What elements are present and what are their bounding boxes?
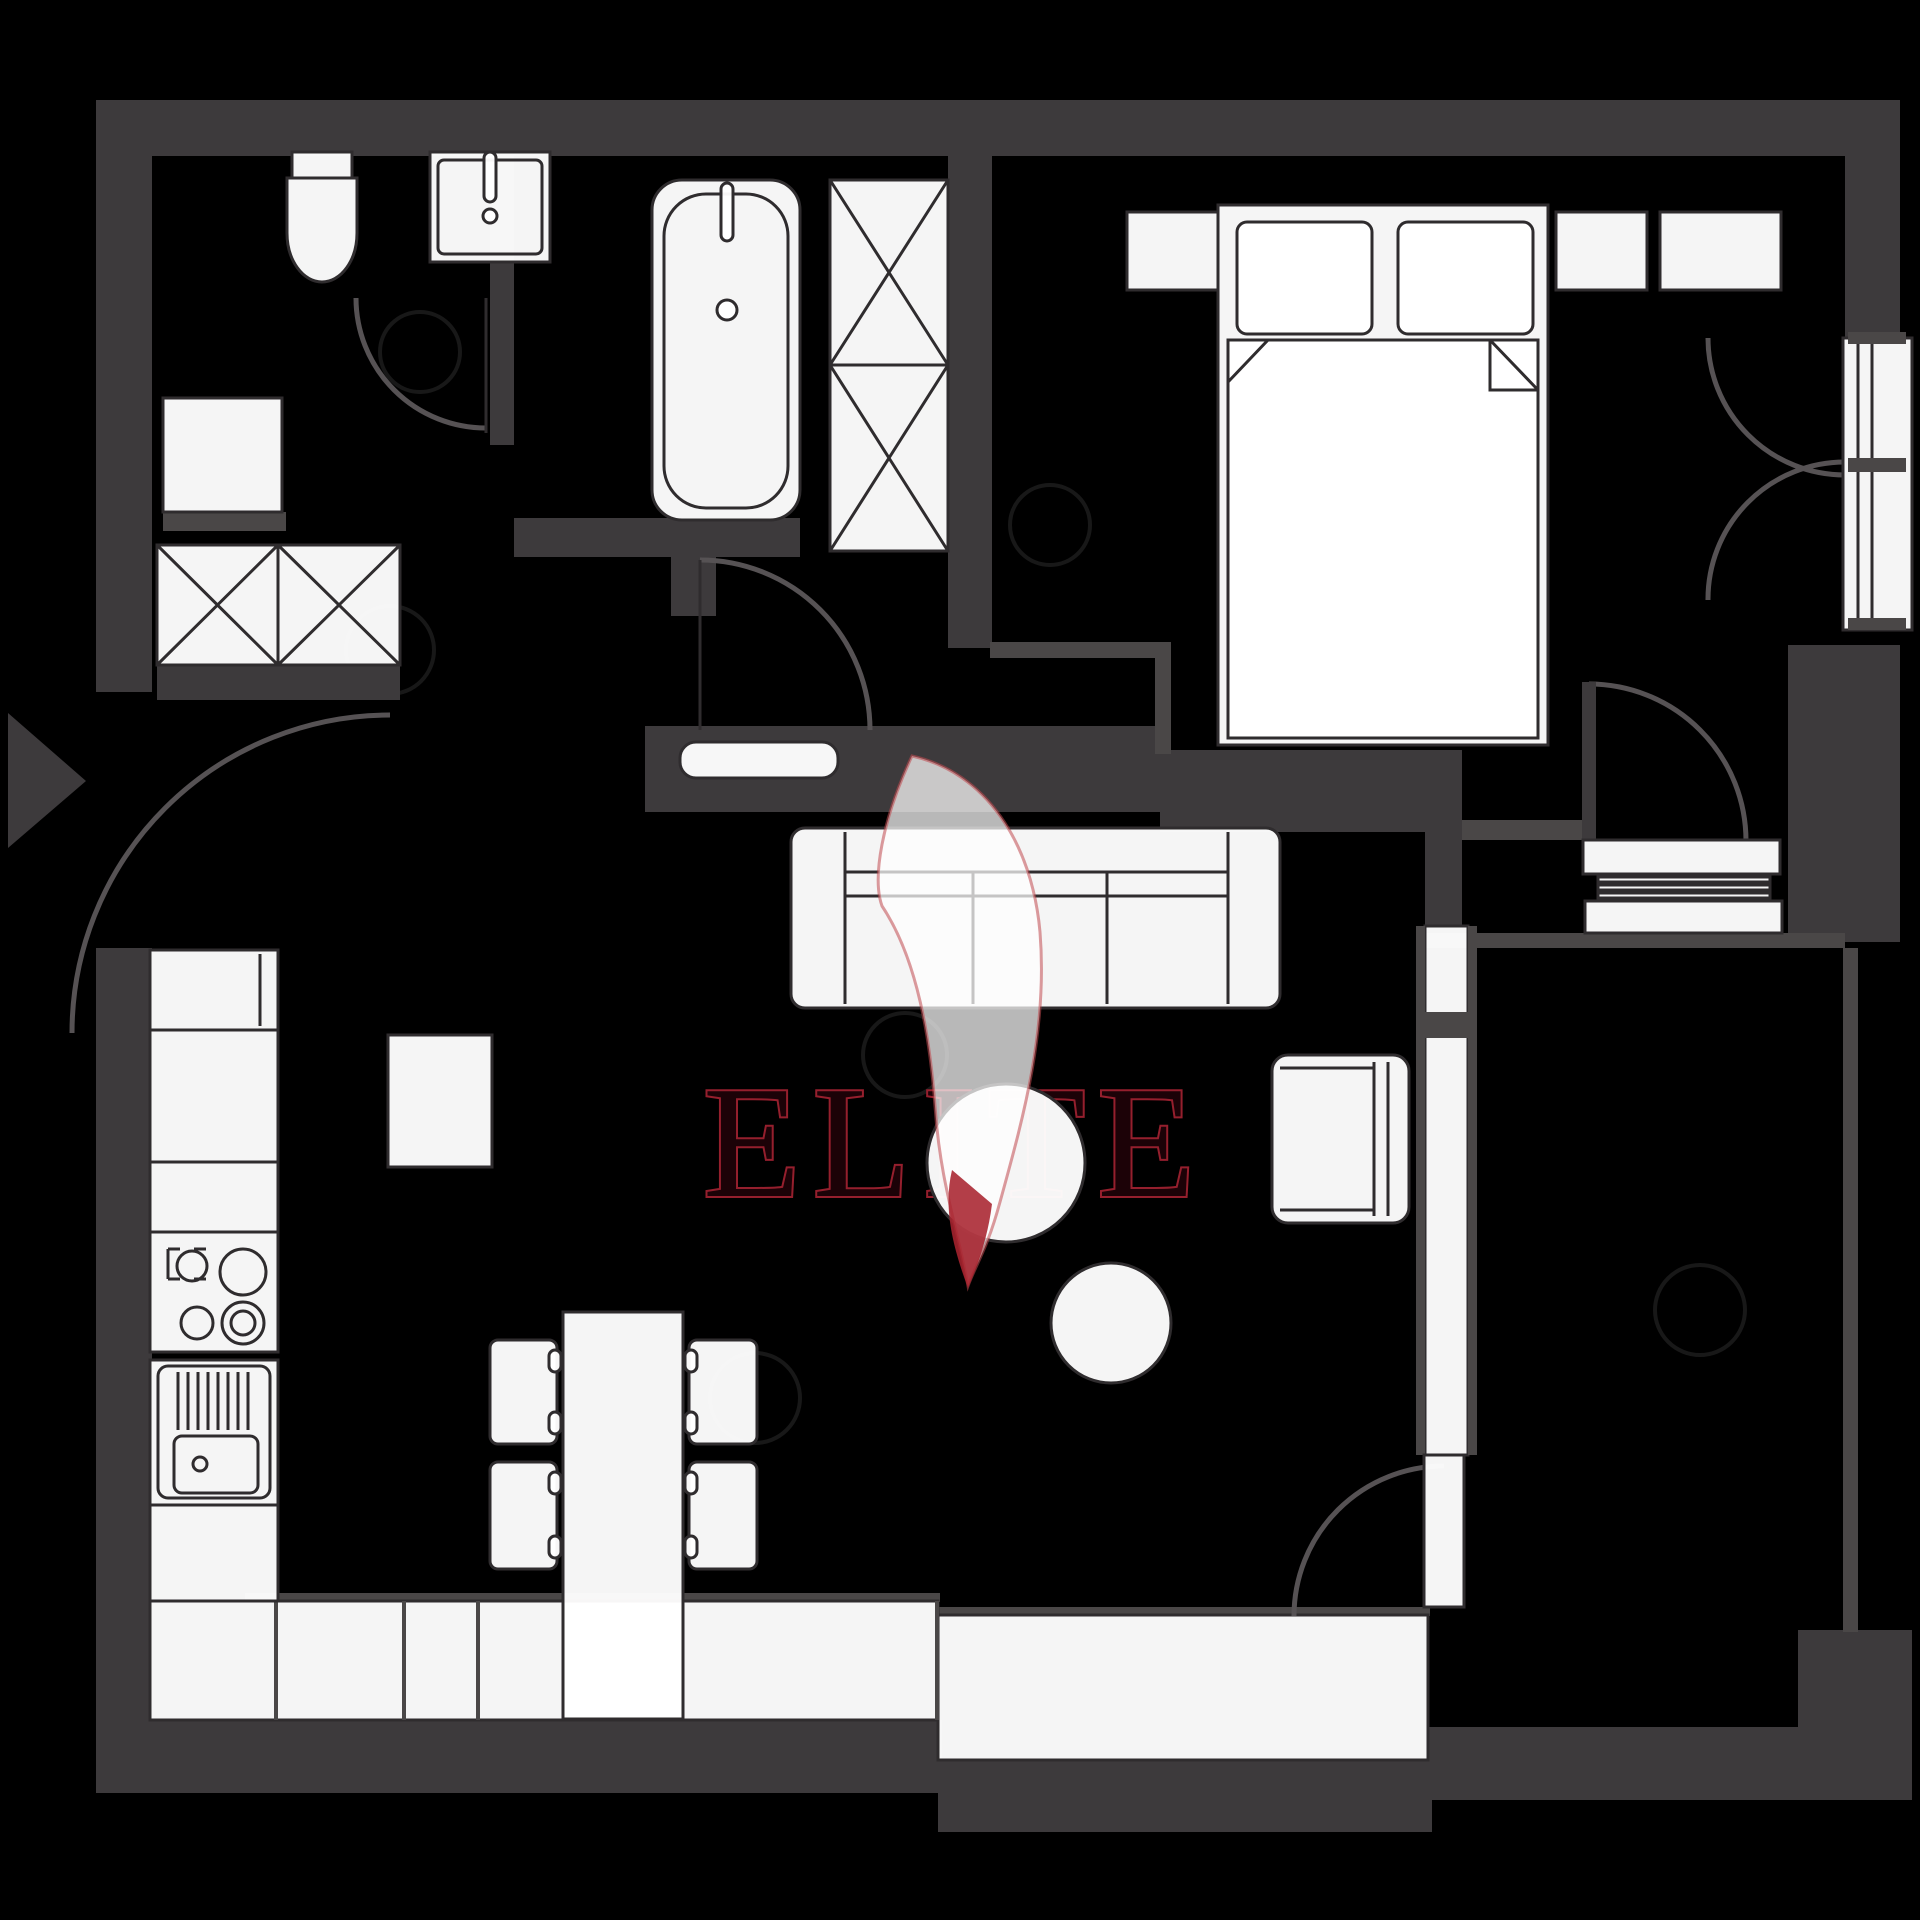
- window-leaf-arc-bottom: [1708, 462, 1845, 600]
- armchair-icon: [1272, 1055, 1409, 1223]
- wc-door-arc: [356, 298, 486, 428]
- sliding-partition: [1416, 926, 1477, 1455]
- coffee-table-small-icon: [1051, 1263, 1171, 1383]
- toilet-tank-icon: [292, 152, 352, 178]
- kitchen-sink-icon: [150, 1360, 278, 1505]
- sideboard-bottom: [1585, 901, 1782, 933]
- wc-faucet-icon: [484, 152, 496, 202]
- chair-arm: [549, 1350, 561, 1372]
- chair-arm: [549, 1412, 561, 1434]
- chair-seat: [689, 1340, 757, 1444]
- balcony-door-arc: [1294, 1466, 1444, 1616]
- kitchen: [150, 950, 492, 1601]
- washer-base-wall: [157, 665, 400, 700]
- ceiling-light-icon: [380, 312, 460, 392]
- kitchen-cabinet: [150, 1505, 278, 1601]
- dining-chair-icon: [685, 1340, 757, 1444]
- ceiling-light-icon: [1655, 1265, 1745, 1355]
- cabinet-divider: [935, 1601, 939, 1720]
- partition-glass: [1425, 926, 1468, 1455]
- window-joint: [1848, 618, 1906, 630]
- window-frame: [1843, 338, 1912, 630]
- nightstand-icon: [1556, 212, 1647, 290]
- dining-chair-icon: [490, 1462, 561, 1569]
- kitchen-counter: [150, 1162, 278, 1232]
- dining-chair-icon: [490, 1340, 561, 1444]
- window-leaf-arc-top: [1708, 338, 1845, 475]
- chair-arm: [685, 1412, 697, 1434]
- tub-faucet-icon: [721, 183, 733, 241]
- left-wall-upper: [96, 100, 152, 692]
- wc-bottom-line: [163, 512, 286, 531]
- stove-icon: [150, 1232, 278, 1352]
- right-wall-upper: [1845, 100, 1900, 338]
- chair-seat: [490, 1462, 557, 1569]
- sideboard-stripe: [1598, 885, 1770, 890]
- balcony-floor-left: [150, 1601, 938, 1720]
- toilet-icon: [287, 178, 357, 282]
- partition-rail: [1468, 926, 1477, 1455]
- bedroom-bottom-thin-wall: [990, 642, 1165, 658]
- bedroom-dresser-icon: [1660, 212, 1781, 290]
- bathroom-cabinet-icon: [830, 180, 948, 551]
- pillow-icon: [1237, 222, 1372, 334]
- window-joint: [1848, 332, 1906, 344]
- chair-seat: [490, 1340, 557, 1444]
- chair-arm: [549, 1536, 561, 1558]
- entrance-arrow-icon: [8, 713, 86, 848]
- pillow-icon: [1398, 222, 1533, 334]
- second-room-right-wall: [1843, 948, 1858, 1632]
- chair-arm: [549, 1472, 561, 1494]
- right-wall-block: [1788, 645, 1900, 942]
- balcony-floor-mid: [938, 1615, 1428, 1760]
- ceiling-light-icon: [1010, 485, 1090, 565]
- top-wall: [96, 100, 1900, 156]
- dining-table-icon: [563, 1312, 683, 1719]
- hall-sideboard-icon: [1583, 840, 1782, 933]
- bedroom-french-window: [1843, 332, 1912, 630]
- partition-connector: [1424, 1012, 1468, 1038]
- partition-rail: [1416, 926, 1425, 1455]
- floor-plan-canvas: ELITE: [0, 0, 1920, 1920]
- washing-machine-icon: [157, 545, 278, 665]
- chair-arm: [685, 1472, 697, 1494]
- sideboard-stripe: [1598, 877, 1770, 882]
- cabinet-divider: [402, 1601, 406, 1720]
- tub-drain-icon: [717, 300, 737, 320]
- chair-arm: [685, 1350, 697, 1372]
- wall-niche: [680, 742, 838, 778]
- bathroom-door-arc: [700, 560, 870, 730]
- bottom-wall-left: [96, 1720, 942, 1793]
- chair-seat: [689, 1462, 757, 1569]
- balcony-door-leaf: [1424, 1455, 1464, 1607]
- bathroom-door-post: [671, 557, 716, 616]
- entry-door-leaf: [388, 1035, 492, 1167]
- bedroom-wall-return: [1425, 832, 1462, 928]
- hall-thin-wall: [1462, 820, 1584, 840]
- bedroom-bottom-wall: [1160, 750, 1462, 832]
- bottom-right-corner-block: [1798, 1630, 1912, 1800]
- hall: [1582, 682, 1782, 933]
- sideboard-stripe: [1598, 893, 1770, 898]
- dining-chair-icon: [685, 1462, 757, 1569]
- fridge-icon: [150, 1030, 278, 1162]
- left-wall-lower: [96, 948, 152, 1793]
- bathroom-bottom-wall: [514, 518, 800, 557]
- bedroom-step-thin-wall: [1155, 642, 1171, 754]
- sideboard-top: [1583, 840, 1780, 874]
- bathroom: [652, 180, 948, 551]
- chair-arm: [685, 1536, 697, 1558]
- window-joint: [1848, 458, 1906, 472]
- bottom-wall-mid: [938, 1760, 1432, 1832]
- wc-drain-icon: [483, 209, 497, 223]
- bathroom-right-wall: [948, 152, 992, 648]
- nightstand-icon: [1127, 212, 1218, 290]
- shower-unit-icon: [163, 398, 282, 512]
- cabinet-divider: [476, 1601, 480, 1720]
- second-room-top-wall: [1424, 933, 1845, 948]
- hall-door-leaf: [1582, 682, 1596, 840]
- hall-door-arc: [1589, 684, 1746, 841]
- mattress-icon: [1228, 340, 1538, 738]
- washing-machine-icon: [278, 545, 400, 665]
- floor-plan: ELITE: [0, 0, 1920, 1920]
- cabinet-divider: [274, 1601, 278, 1720]
